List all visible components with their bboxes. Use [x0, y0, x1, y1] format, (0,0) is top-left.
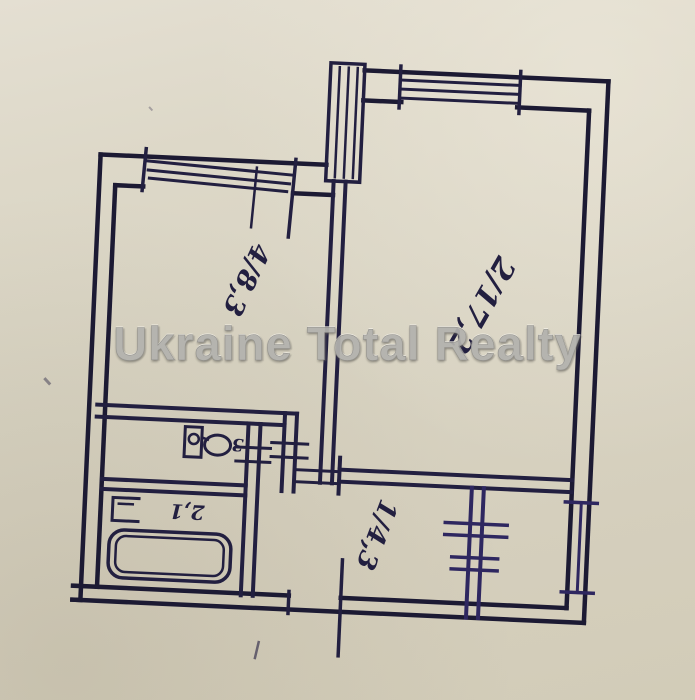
kitchen-partition — [441, 487, 509, 620]
interior-walls — [89, 171, 585, 610]
scanned-floorplan-photo: 2/17,2 4/8,3 1/4,3 2,1 3 Ukraine Total R… — [0, 0, 695, 700]
room-label-living: 2/17,2 — [440, 250, 523, 359]
room-label-wc: 3 — [231, 434, 244, 455]
toilet-icon — [184, 427, 231, 459]
vent-shaft — [326, 63, 365, 182]
room-label-hallway: 1/4,3 — [349, 495, 403, 574]
sink-icon — [112, 497, 139, 521]
bathtub-icon — [107, 529, 231, 582]
room-label-bathroom: 2,1 — [169, 499, 206, 525]
floor-plan-drawing: 2/17,2 4/8,3 1/4,3 2,1 3 — [0, 0, 695, 700]
room-label-bedroom: 4/8,3 — [216, 239, 276, 321]
entrance-door — [286, 558, 342, 656]
